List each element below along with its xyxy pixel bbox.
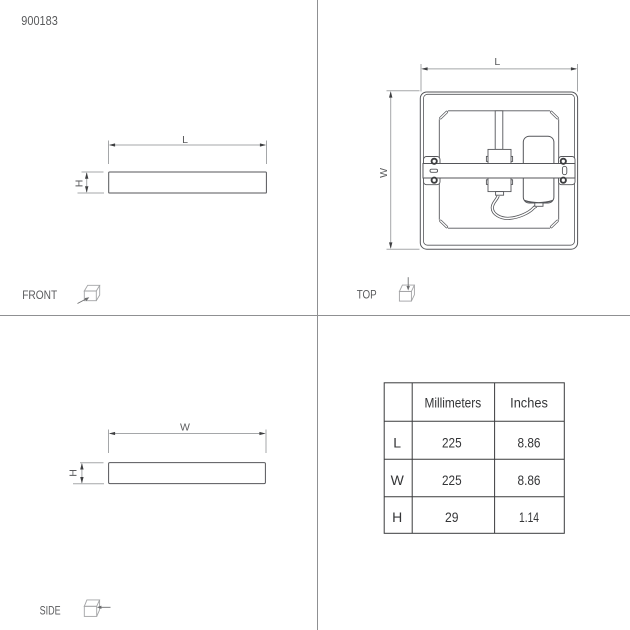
svg-text:Inches: Inches xyxy=(510,395,548,411)
svg-text:L: L xyxy=(494,56,500,68)
svg-text:8.86: 8.86 xyxy=(518,472,541,488)
svg-text:Millimeters: Millimeters xyxy=(424,395,481,411)
svg-text:L: L xyxy=(182,134,188,146)
svg-text:225: 225 xyxy=(442,472,462,488)
svg-text:225: 225 xyxy=(442,434,462,450)
svg-text:W: W xyxy=(378,168,390,178)
svg-text:W: W xyxy=(180,422,190,434)
svg-text:W: W xyxy=(391,472,405,488)
svg-text:TOP: TOP xyxy=(357,290,377,302)
svg-text:H: H xyxy=(67,469,79,477)
svg-text:1.14: 1.14 xyxy=(519,509,539,525)
svg-text:H: H xyxy=(74,180,86,188)
svg-text:L: L xyxy=(393,434,401,450)
svg-text:29: 29 xyxy=(445,509,459,525)
svg-text:FRONT: FRONT xyxy=(22,290,57,302)
svg-text:H: H xyxy=(392,509,402,525)
svg-text:SIDE: SIDE xyxy=(40,606,61,618)
svg-text:900183: 900183 xyxy=(21,13,58,28)
svg-text:8.86: 8.86 xyxy=(518,434,541,450)
